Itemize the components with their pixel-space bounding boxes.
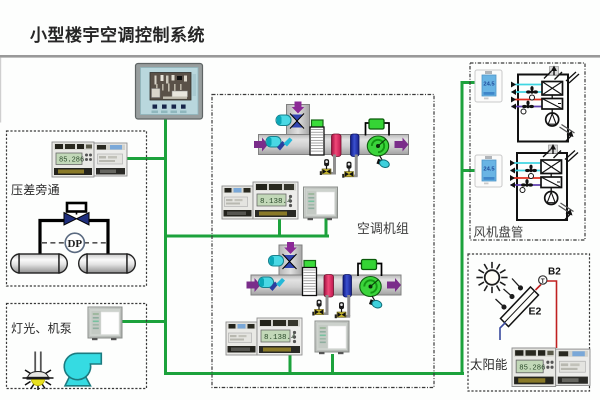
svg-text:E2: E2 [529,306,542,318]
svg-text:DP: DP [67,238,82,250]
svg-text:压差旁通: 压差旁通 [11,182,60,197]
svg-text:T: T [541,278,545,285]
svg-text:空调机组: 空调机组 [357,221,409,236]
svg-text:太阳能: 太阳能 [470,357,508,372]
svg-text:小型楼宇空调控制系统: 小型楼宇空调控制系统 [30,25,205,45]
svg-text:B2: B2 [548,267,561,278]
svg-text:风机盘管: 风机盘管 [474,225,524,240]
svg-text:灯光、机泵: 灯光、机泵 [11,322,72,336]
